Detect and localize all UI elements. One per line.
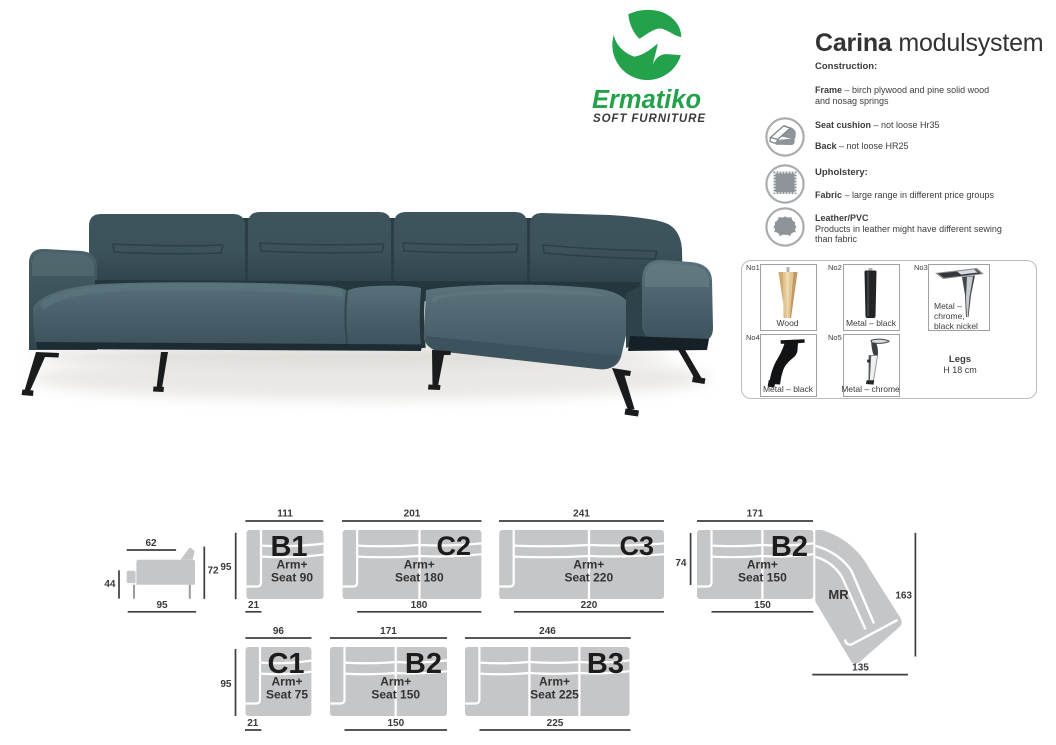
svg-text:Seat 75: Seat 75 [266, 688, 308, 702]
svg-text:95: 95 [220, 562, 232, 573]
svg-text:163: 163 [895, 591, 912, 602]
svg-text:225: 225 [547, 718, 564, 729]
svg-text:171: 171 [747, 509, 764, 520]
svg-text:21: 21 [248, 600, 260, 611]
svg-text:Seat 180: Seat 180 [395, 571, 444, 585]
svg-text:MR: MR [828, 587, 849, 602]
svg-text:95: 95 [220, 679, 232, 690]
svg-text:62: 62 [145, 538, 157, 549]
svg-text:241: 241 [573, 509, 590, 520]
svg-text:135: 135 [852, 663, 869, 674]
svg-text:Seat 150: Seat 150 [371, 688, 420, 702]
svg-text:Arm+: Arm+ [747, 558, 778, 572]
svg-text:201: 201 [404, 509, 421, 520]
svg-text:95: 95 [156, 600, 168, 611]
svg-text:Seat 150: Seat 150 [738, 571, 787, 585]
svg-text:150: 150 [754, 600, 771, 611]
svg-text:44: 44 [104, 579, 116, 590]
svg-text:Seat 220: Seat 220 [564, 571, 613, 585]
svg-text:21: 21 [247, 718, 259, 729]
svg-text:Seat 90: Seat 90 [271, 571, 313, 585]
svg-text:220: 220 [581, 600, 598, 611]
svg-text:C2: C2 [436, 531, 471, 561]
svg-text:72: 72 [208, 566, 220, 577]
svg-text:74: 74 [675, 558, 687, 569]
svg-text:Arm+: Arm+ [539, 675, 570, 689]
svg-text:B3: B3 [587, 648, 624, 680]
svg-text:111: 111 [277, 509, 293, 520]
svg-text:Arm+: Arm+ [271, 675, 302, 689]
svg-text:Arm+: Arm+ [380, 675, 411, 689]
svg-text:Arm+: Arm+ [276, 558, 307, 572]
svg-text:Seat 225: Seat 225 [530, 688, 579, 702]
svg-text:Arm+: Arm+ [404, 558, 435, 572]
svg-text:Arm+: Arm+ [573, 558, 604, 572]
svg-text:96: 96 [273, 626, 285, 637]
svg-text:C3: C3 [619, 531, 654, 561]
svg-text:246: 246 [539, 626, 556, 637]
svg-text:150: 150 [387, 718, 404, 729]
svg-text:171: 171 [380, 626, 397, 637]
svg-text:180: 180 [411, 600, 428, 611]
